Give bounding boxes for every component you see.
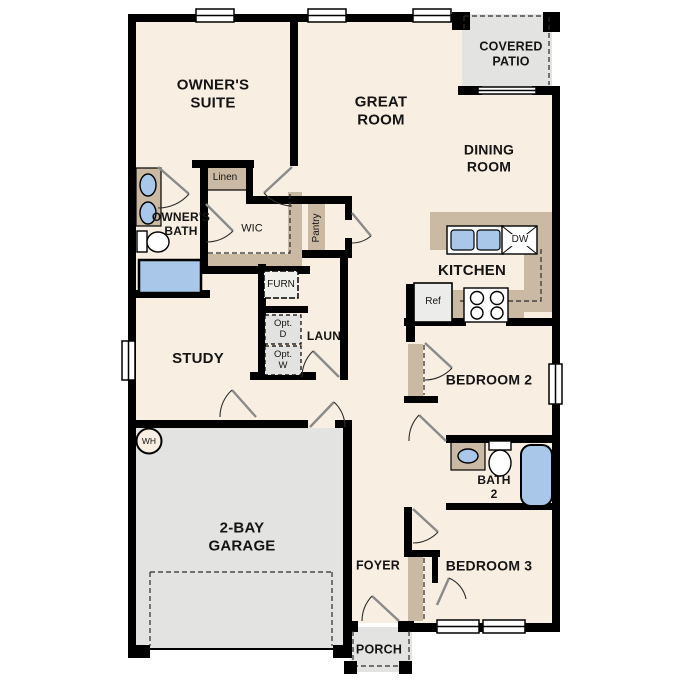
- wall: [404, 550, 440, 557]
- wall: [452, 12, 470, 30]
- toilet-tank-icon: [489, 441, 511, 450]
- room-label-owners-bath: OWNER'S BATH: [152, 210, 210, 238]
- fixture-label-opt-dryer: Opt. D: [274, 318, 292, 340]
- floor-plan-drawing: [0, 0, 687, 687]
- wall: [343, 420, 352, 650]
- room-label-great-room: GREAT ROOM: [355, 93, 407, 128]
- fixture-label-linen: Linen: [213, 172, 237, 184]
- room-label-laundry: LAUN: [307, 329, 341, 343]
- wall: [246, 196, 352, 204]
- wall: [345, 204, 352, 220]
- bedroom3-closet: [408, 557, 423, 621]
- garage-door-line: [148, 648, 334, 650]
- wall: [506, 318, 560, 326]
- fixture-label-pantry: Pantry: [311, 214, 323, 243]
- burner-icon: [491, 307, 503, 319]
- burner-icon: [471, 292, 484, 305]
- sink-icon: [140, 174, 156, 196]
- room-label-porch: PORCH: [356, 643, 402, 658]
- wall: [404, 507, 412, 557]
- sink-icon: [458, 449, 478, 463]
- fixture-label-opt-washer: Opt. W: [274, 349, 292, 371]
- fixture-label-water-heater: WH: [142, 436, 156, 446]
- room-label-kitchen: KITCHEN: [438, 262, 506, 280]
- wall: [128, 645, 150, 658]
- kitchen-sink-icon: [451, 230, 474, 250]
- wall: [543, 12, 560, 32]
- burner-icon: [471, 307, 483, 319]
- wall: [398, 621, 414, 632]
- wall: [290, 14, 298, 166]
- wall: [128, 14, 136, 658]
- porch-post: [399, 661, 412, 674]
- room-label-dining-room: DINING ROOM: [464, 141, 514, 174]
- fixture-label-furnace: FURN: [267, 279, 295, 291]
- room-label-bedroom2: BEDROOM 2: [446, 372, 533, 389]
- wall: [432, 557, 438, 583]
- room-label-foyer: FOYER: [356, 559, 400, 574]
- shower-tub-icon: [139, 260, 201, 293]
- room-label-wic: WIC: [241, 223, 262, 236]
- room-label-study: STUDY: [172, 350, 224, 368]
- wall: [404, 396, 438, 403]
- room-label-owners-suite: OWNER'S SUITE: [177, 76, 249, 111]
- room-label-garage: 2-BAY GARAGE: [208, 519, 275, 554]
- room-label-covered-patio: COVERED PATIO: [479, 39, 542, 69]
- floor-plan: OWNER'S SUITE GREAT ROOM COVERED PATIO D…: [0, 0, 687, 687]
- room-label-bedroom3: BEDROOM 3: [446, 558, 533, 575]
- wall: [258, 306, 308, 313]
- fixture-label-dishwasher: DW: [511, 234, 530, 246]
- bathtub-icon: [521, 445, 552, 506]
- porch-post: [344, 661, 357, 674]
- wall: [404, 623, 560, 632]
- toilet-tank-icon: [137, 231, 147, 252]
- wall: [340, 258, 348, 380]
- bedroom2-closet: [408, 344, 423, 396]
- kitchen-sink-icon: [477, 230, 500, 250]
- fixture-label-refrigerator: Ref: [425, 296, 441, 308]
- wic-shelf-bottom: [206, 254, 302, 268]
- room-label-bath2: BATH 2: [477, 473, 510, 501]
- wall: [552, 86, 560, 632]
- wall: [136, 420, 308, 428]
- wall: [302, 250, 352, 258]
- burner-icon: [491, 292, 504, 305]
